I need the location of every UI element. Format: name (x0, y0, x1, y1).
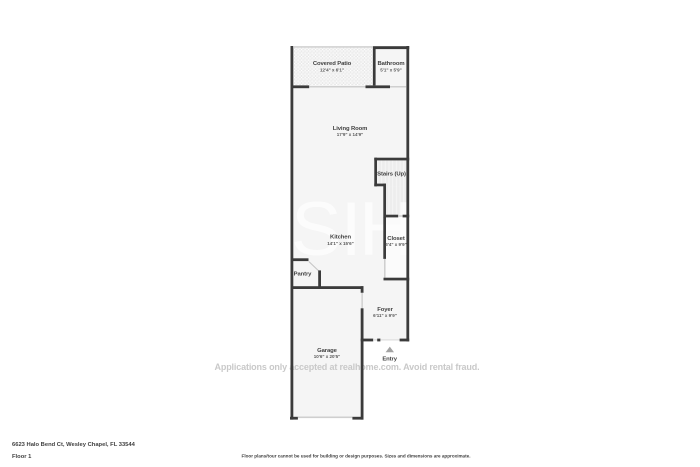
svg-text:Living Room: Living Room (333, 126, 368, 132)
svg-text:Covered Patio: Covered Patio (313, 61, 352, 67)
svg-text:6'11" x 9'9": 6'11" x 9'9" (373, 313, 397, 318)
svg-text:Pantry: Pantry (294, 272, 313, 278)
svg-text:5'1" x 5'9": 5'1" x 5'9" (380, 67, 401, 72)
svg-text:Bathroom: Bathroom (377, 61, 404, 67)
svg-text:Garage: Garage (317, 348, 338, 354)
svg-text:17'9" x 14'9": 17'9" x 14'9" (337, 132, 363, 137)
svg-text:Kitchen: Kitchen (330, 235, 351, 241)
svg-text:H: H (359, 187, 414, 272)
svg-text:Floor 1: Floor 1 (12, 454, 32, 460)
svg-text:Floor plans/tour cannot be use: Floor plans/tour cannot be used for buil… (242, 454, 471, 459)
svg-text:Stairs (Up): Stairs (Up) (377, 172, 406, 178)
svg-text:6623 Halo Bend Ct, Wesley Chap: 6623 Halo Bend Ct, Wesley Chapel, FL 335… (12, 442, 136, 448)
svg-text:3'4" x 9'9": 3'4" x 9'9" (385, 242, 406, 247)
svg-text:12'4" x 6'1": 12'4" x 6'1" (320, 67, 344, 72)
svg-text:Applications only accepted at: Applications only accepted at realhome.c… (215, 362, 480, 372)
svg-text:10'6" x 20'5": 10'6" x 20'5" (314, 354, 340, 359)
svg-text:Entry: Entry (382, 356, 397, 362)
svg-text:14'1" x 15'6": 14'1" x 15'6" (327, 241, 353, 246)
